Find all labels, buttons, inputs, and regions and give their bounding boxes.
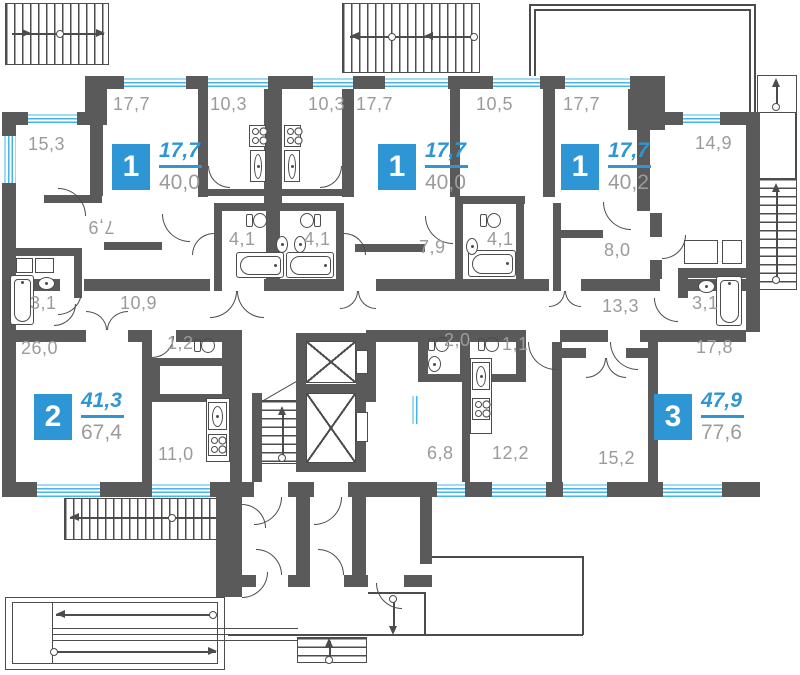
wall [348,482,420,497]
room-area-label: 13,3 [602,296,639,317]
wall [264,279,340,291]
door-arc [86,311,107,330]
apartment-number: 1 [112,144,150,190]
room-area-label: 26,0 [21,338,58,359]
bathtub-icon [716,276,742,326]
wall [90,89,103,196]
arrow-line [56,614,216,616]
floor-plan: 15,3 17,7 10,3 10,3 17,7 10,5 17,7 14,9 … [0,0,800,675]
wall [296,463,366,472]
porch-line [432,556,583,558]
door-arc [340,291,358,309]
arrow-head [278,406,286,415]
toilet-icon [194,337,215,352]
room-area-label: 3,1 [692,293,719,314]
apartment-number: 3 [654,394,692,440]
arrow-head [350,32,359,40]
ramp-line [52,628,298,629]
wall [216,482,242,597]
arrow-head [208,647,217,655]
window [663,482,722,497]
bathtub-icon [236,252,284,278]
window [385,76,448,89]
room-area-label: 4,1 [229,229,256,250]
ramp-outline [12,602,218,664]
arrow-head [772,78,780,87]
wall [208,189,264,196]
door-arc [54,304,76,326]
apartment-areas: 47,9 77,6 [701,390,744,443]
wall [230,330,242,482]
door-arc [565,291,581,307]
apartment-badge[interactable]: 1 17,7 40,2 [561,140,651,193]
wall [14,248,82,256]
arrow-line [56,651,216,653]
wall [142,342,152,482]
arrow-head [389,626,397,635]
room-area-label: 4,1 [487,229,514,250]
wall [252,393,262,482]
room-area-label: 10,3 [308,94,345,115]
apartment-badge[interactable]: 2 41,3 67,4 [34,390,124,443]
door-arc [162,214,190,242]
arrow-line [350,36,474,38]
room-area-label: 11,0 [158,444,194,465]
elevator-shaft-icon [306,341,356,383]
kitchen-sink-icon [208,402,227,430]
direction-circle [50,648,58,656]
direction-circle [772,103,780,111]
wall [104,242,162,250]
porch-line [424,592,426,635]
window [313,76,353,89]
door-arc [662,235,686,259]
total-area: 40,0 [425,168,468,193]
room-area-label: 10,9 [120,293,157,314]
living-area: 41,3 [81,390,124,418]
room-area-label: 17,7 [356,94,393,115]
door-arc [358,291,376,309]
wall [264,89,282,211]
door-arc [603,202,631,230]
window [2,136,16,183]
stove-icon [472,398,490,420]
wall [214,203,265,211]
window [208,76,268,89]
window [410,396,418,424]
side-stair-line [795,113,797,178]
room-area-label: 4,1 [304,229,331,250]
sink-icon [698,280,715,293]
living-area: 17,7 [425,140,468,168]
window [124,76,186,89]
arrow-head [22,29,31,37]
room-area-label: 14,9 [695,133,732,154]
wall [128,330,152,342]
apartment-badge[interactable]: 1 17,7 40,0 [378,140,468,193]
kitchen-sink-icon [472,362,490,390]
terrace-outline [754,4,756,112]
door-arc [320,166,342,188]
apartment-areas: 41,3 67,4 [81,390,124,443]
door-arc [586,358,606,378]
apartment-areas: 17,7 40,0 [159,140,202,193]
total-area: 40,0 [159,168,202,193]
closet [684,240,718,264]
closet [35,258,54,273]
elevator-door [356,412,368,442]
room-area-label: 12,2 [492,443,529,464]
door-arc [242,572,268,598]
direction-circle [325,656,333,664]
toilet-icon [300,212,321,227]
elevator-shaft-icon [306,393,356,463]
wall [420,482,432,564]
living-area: 17,7 [159,140,202,168]
door-arc [208,166,230,188]
door-arc [654,298,678,322]
wall [553,203,561,291]
apartment-badge[interactable]: 3 47,9 77,6 [654,390,744,443]
room-area-label: 7,9 [419,237,446,258]
direction-circle [209,611,217,619]
apartment-number: 2 [34,394,72,440]
window [565,76,630,89]
room-area-label: 7,9 [88,216,115,237]
wall [366,330,422,342]
wall [214,203,222,291]
room-area-label: 6,8 [427,443,454,464]
arrow-head [96,29,105,37]
direction-circle [389,595,397,603]
stove-icon [249,125,266,147]
total-area: 77,6 [701,418,744,443]
window [152,482,210,497]
living-area: 47,9 [701,390,744,418]
arrow-head [424,32,433,40]
direction-circle [388,33,396,41]
toilet-icon [246,212,267,227]
apartment-areas: 17,7 40,2 [608,140,651,193]
apartment-areas: 17,7 40,0 [425,140,468,193]
direction-circle [168,514,176,522]
wall [404,575,432,587]
direction-circle [56,30,64,38]
arrow-line [282,410,284,458]
window [563,482,607,497]
closet [722,240,742,264]
terrace-outline [749,9,751,112]
wall [516,196,524,291]
sink-icon [38,277,55,290]
window [28,112,77,125]
window [683,112,720,125]
door-arc [314,497,342,525]
toilet-icon [478,336,499,351]
room-area-label: 10,3 [210,94,247,115]
apartment-number: 1 [378,144,416,190]
wall [306,384,356,393]
wall [288,575,310,587]
apartment-badge[interactable]: 1 17,7 40,0 [112,140,202,193]
ramp-line [52,634,298,635]
wall [552,348,586,358]
porch-line [582,556,584,635]
sink-icon [466,238,478,255]
stove-icon [284,125,301,147]
door-arc [192,233,214,255]
elevator-door [356,350,368,374]
arrow-head [325,638,333,647]
terrace-outline [534,9,536,76]
total-area: 67,4 [81,418,124,443]
kitchen-sink-icon [250,150,266,182]
wall [650,260,662,279]
arrow-head [772,183,780,192]
room-area-label: 10,5 [476,94,513,115]
wall [344,575,368,587]
door-arc [58,188,86,216]
window [493,76,540,89]
door-arc [318,549,344,575]
door-arc [344,233,366,255]
room-area-label: 15,2 [598,448,635,469]
wall [560,330,608,342]
wall [581,279,660,291]
total-area: 40,2 [608,168,651,193]
room-area-label: 17,7 [563,94,600,115]
stove-icon [208,434,227,456]
window [37,482,100,497]
room-area-label: 3,1 [30,293,57,314]
stair-treads [342,3,480,73]
wall [455,196,463,291]
kitchen-sink-icon [284,150,300,182]
room-area-label: 15,3 [28,134,65,155]
wall [543,89,555,197]
wall [376,279,549,291]
direction-circle [772,276,780,284]
wall [288,482,314,497]
living-area: 17,7 [608,140,651,168]
apartment-number: 1 [561,144,599,190]
terrace-outline [529,4,531,76]
bathtub-icon [286,252,334,278]
wall [282,189,342,196]
direction-circle [278,454,286,462]
wall [650,213,662,237]
room-area-label: 17,8 [696,337,733,358]
room-area-label: 17,7 [113,94,150,115]
sink-icon [276,236,288,253]
wall [352,497,366,577]
stair-treads [64,498,218,540]
arrow-line [70,517,216,519]
wall [242,482,254,497]
wall [678,268,688,298]
wall [746,112,760,332]
room-area-label: 2,0 [444,330,471,351]
wall [84,279,210,291]
door-arc [210,291,237,318]
terrace-outline [529,4,756,6]
terrace-outline [534,9,751,11]
sink-icon [428,356,441,372]
door-arc [549,291,565,307]
wall [336,203,344,291]
porch-line [424,634,583,636]
wall [296,497,310,577]
bathtub-icon [468,250,516,277]
room-area-label: 1,2 [167,333,194,354]
window [492,482,546,497]
wall [455,196,525,204]
door-arc [237,291,264,318]
arrow-line [776,188,778,280]
ramp-line [52,640,298,641]
wall [280,203,344,211]
room-area-label: 1,1 [502,334,529,355]
wall [296,333,306,472]
closet [16,258,33,273]
wall [561,230,603,238]
wall [152,358,230,366]
arrow-head [56,610,65,618]
arrow-head [70,513,79,521]
toilet-icon [480,212,501,227]
window [437,482,465,497]
door-arc [528,342,556,370]
direction-circle [470,33,478,41]
room-area-label: 8,0 [604,240,631,261]
wall [462,382,470,482]
